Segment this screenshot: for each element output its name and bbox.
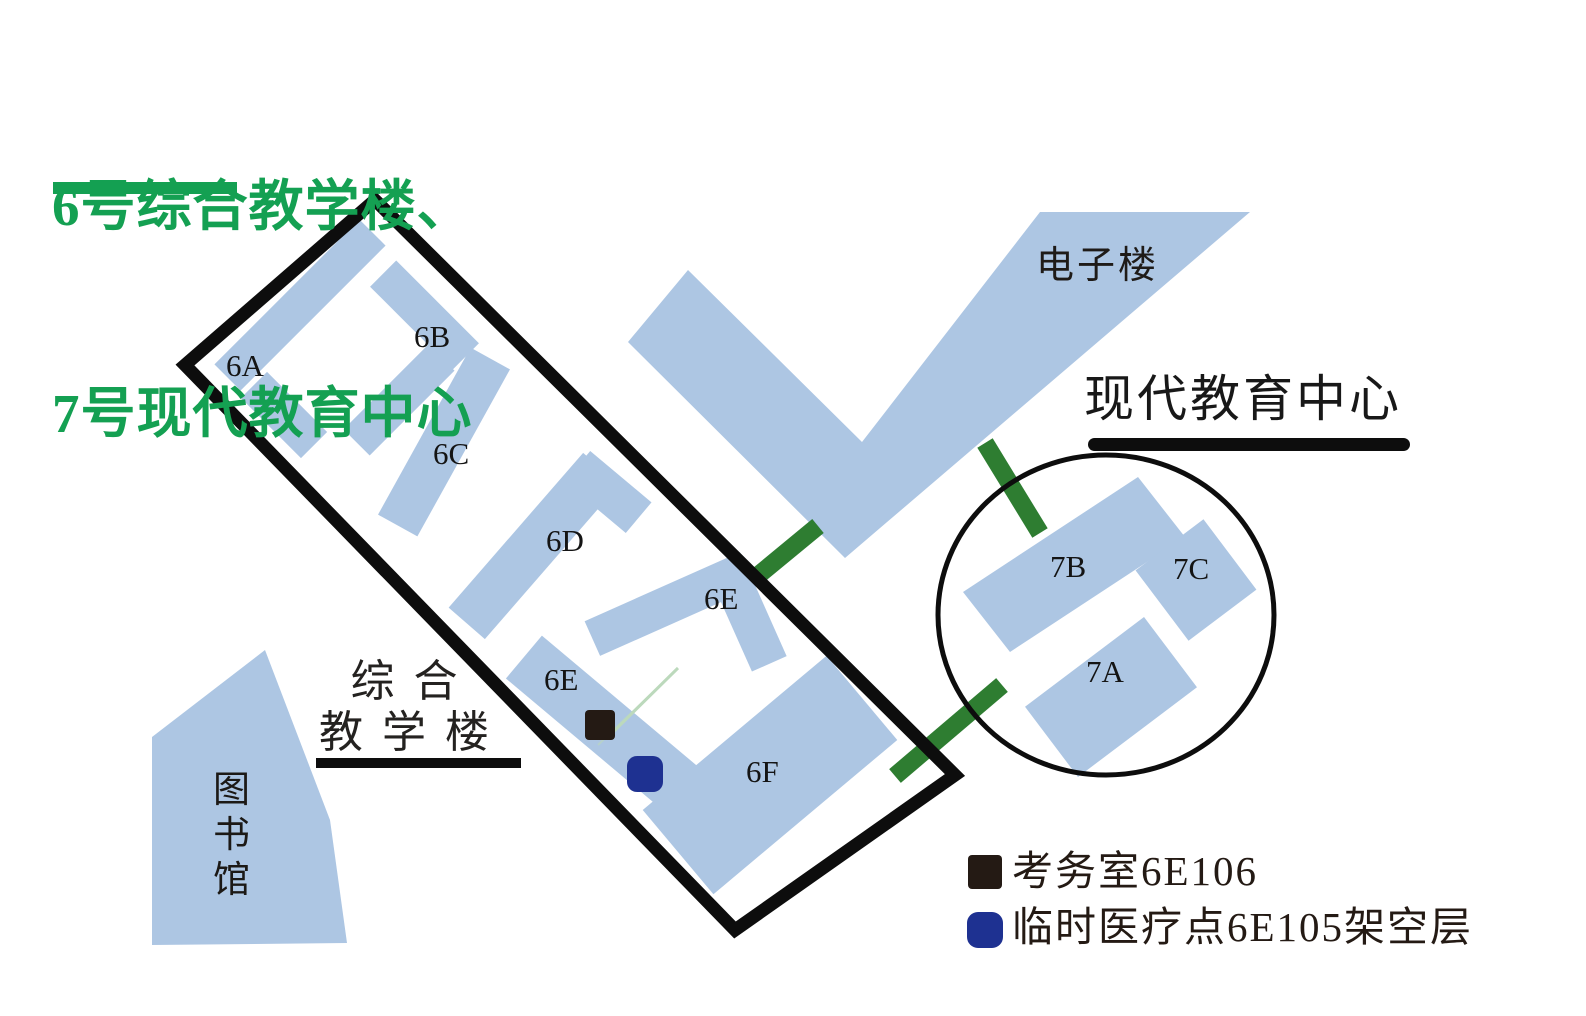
medical-point-marker bbox=[627, 756, 663, 792]
label-building-6d: 6D bbox=[546, 525, 584, 556]
label-building-6e-upper: 6E bbox=[704, 583, 738, 614]
label-building-7a: 7A bbox=[1086, 656, 1124, 687]
label-building-6a: 6A bbox=[226, 350, 264, 381]
walkway-connector-north bbox=[755, 526, 818, 578]
legend-medical-point-swatch bbox=[967, 912, 1003, 948]
label-comprehensive-teaching-building: 综 合 教 学 楼 bbox=[306, 656, 506, 758]
modern-education-center-underline bbox=[1088, 438, 1410, 451]
legend-exam-office-label: 考务室6E106 bbox=[1012, 851, 1258, 892]
label-building-7b: 7B bbox=[1050, 551, 1086, 582]
label-modern-education-center: 现代教育中心 bbox=[1084, 372, 1402, 427]
label-library: 图书馆 bbox=[213, 768, 253, 903]
legend-exam-office-swatch bbox=[968, 855, 1002, 889]
title-underline bbox=[53, 182, 237, 194]
label-building-6e-lower: 6E bbox=[544, 664, 578, 695]
label-comprehensive-teaching-line2: 教 学 楼 bbox=[306, 707, 506, 758]
comprehensive-teaching-underline bbox=[316, 758, 521, 768]
campus-map-canvas: 6号综合教学楼、 7号现代教育中心 6A 6B 6C 6D 6E 6E 6F 7… bbox=[0, 0, 1586, 1016]
label-electronics-building: 电子楼 bbox=[1036, 246, 1159, 288]
page-title-line2: 7号现代教育中心 bbox=[52, 379, 473, 448]
page-title: 6号综合教学楼、 7号现代教育中心 bbox=[52, 34, 473, 586]
walkway-connector-east bbox=[985, 443, 1040, 533]
label-building-7c: 7C bbox=[1173, 553, 1209, 584]
label-building-6c: 6C bbox=[433, 438, 469, 469]
label-building-6f: 6F bbox=[746, 756, 779, 787]
exam-office-marker bbox=[585, 710, 615, 740]
building-7a-shape bbox=[1025, 617, 1197, 777]
legend-medical-point-label: 临时医疗点6E105架空层 bbox=[1012, 907, 1473, 948]
label-comprehensive-teaching-line1: 综 合 bbox=[306, 656, 506, 707]
label-building-6b: 6B bbox=[414, 321, 450, 352]
